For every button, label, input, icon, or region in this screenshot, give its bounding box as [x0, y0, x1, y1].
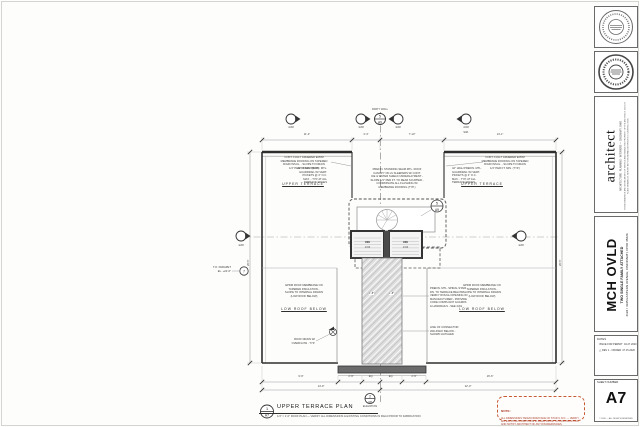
stamp-box-1	[594, 6, 638, 48]
marker-label-2: 3/A8	[358, 126, 363, 129]
date-entry-1-label: ISSUE FOR PERMIT	[599, 343, 623, 346]
engineer-seal-icon	[595, 52, 637, 92]
grid-bubble: 5 A9	[375, 114, 386, 125]
elevation-bubble-top: 2	[369, 394, 371, 398]
sheet-number-box: SHEET NUMBER A7 © 2020 — ALL RIGHTS RESE…	[594, 379, 638, 422]
drawing-scale-line: 1/4" = 1'-0" ROOF PLAN — VERIFY ALL DIME…	[277, 415, 421, 418]
stamp-box-2	[594, 51, 638, 93]
sheet-number: A7	[595, 390, 637, 408]
project-name: MCH OVLD	[605, 238, 618, 311]
marker-label-left: 4/A8	[238, 244, 243, 247]
title-bubble: 1 A7	[261, 405, 274, 418]
dim-bottom1-1: 9'-9"	[298, 375, 303, 378]
date-entry-2-date: 07.15.2020	[622, 349, 635, 352]
note-parapet: T.O. PARAPET EL. +24'-6"	[213, 266, 231, 273]
grid-bubble-bottom: A9	[378, 121, 382, 125]
stair-risers-right: 13 R	[403, 246, 408, 249]
note-heading: NOTE:	[501, 409, 511, 413]
section-marker-1	[286, 114, 301, 124]
project-subtitle: TWO SINGLE FAMILY ATTACHED	[620, 247, 624, 304]
parapet-bubble: 7	[240, 267, 248, 275]
marker-label-4: 2/A8	[463, 126, 468, 129]
stair-enclosure	[357, 207, 435, 232]
elevation-bubble: 2 A8	[365, 394, 375, 405]
stair-dn-right: DN	[403, 240, 407, 244]
dates-box: DATES ISSUE FOR PERMIT 04.27.2020 △ REV …	[594, 335, 638, 376]
note-roof-drain: ROOF DRAIN W/ OVERFLOW - TYP.	[292, 338, 315, 345]
marker-label-sim: SIM.	[463, 131, 468, 134]
title-rule	[259, 413, 378, 414]
section-marker-2	[356, 114, 371, 124]
section-marker-4	[457, 114, 472, 124]
stair-shafts	[351, 231, 422, 258]
firm-disclaimer: THESE DRAWINGS ARE INSTRUMENTS OF SERVIC…	[624, 102, 629, 210]
firm-address: ARCHITECTURE · PLANNING · INTERIORS — CI…	[620, 121, 622, 191]
marker-label-right: 4/A8	[518, 244, 523, 247]
marker-label-3: 3/A8	[395, 126, 400, 129]
terrace-label-right: UPPER TERRACE	[461, 182, 503, 186]
dim-top-4: 14'-1"	[497, 133, 504, 136]
parapet-cap-bar	[338, 366, 426, 373]
date-entry-1: ISSUE FOR PERMIT 04.27.2020	[599, 343, 637, 346]
date-entry-2-label: REV 1 - OWNER	[602, 349, 621, 352]
marker-label-1: 2/A8	[288, 126, 293, 129]
stair-risers-left: 13 R	[365, 246, 370, 249]
note-walkway: LINE OF CONNECTOR WALKWAY BELOW - SHOWN …	[430, 326, 458, 337]
detail-bubble: 5 A9	[431, 200, 443, 212]
grid-bubble-top: 5	[379, 115, 381, 119]
title-bubble-top: 1	[266, 407, 268, 411]
strip-dim-2: 1'-8"	[389, 292, 395, 295]
elevation-ref-label: ELEVATION	[363, 405, 377, 408]
sheet-number-label: SHEET NUMBER	[597, 381, 618, 384]
date-entry-2: △ REV 1 - OWNER 07.15.2020	[599, 348, 635, 352]
revision-delta-icon: △	[599, 348, 601, 352]
dates-label: DATES	[597, 337, 606, 341]
date-entry-1-date: 04.27.2020	[624, 343, 637, 346]
dim-bottom1-6: 16'-6"	[487, 375, 494, 378]
terrace-label-left: UPPER TERRACE	[282, 182, 324, 186]
project-box: MCH OVLD TWO SINGLE FAMILY ATTACHED 4193…	[594, 216, 638, 332]
detail-bubble-bottom: A9	[435, 208, 439, 212]
low-roof-label-left: LOW ROOF BELOW	[281, 307, 327, 311]
dim-top-3: 7'-10"	[409, 133, 416, 136]
strip-dim-1: 1'-8"	[369, 292, 375, 295]
architect-seal-icon	[595, 7, 637, 47]
dim-bottom1-2: 2'-9"	[348, 375, 353, 378]
note-canopy: PREFIN. STANDING SEAM MTL. ROOF CANOPY O…	[370, 168, 423, 189]
note-right-roof: CONT. FULLY ADHERED EPDM MEMBRANE ROOFIN…	[482, 156, 529, 170]
dim-top-2: 3'-4"	[363, 133, 368, 136]
note-low-roof-left: EPDM ROOF MEMBRANE ON TAPERED INSULATION…	[285, 284, 323, 298]
drawing-title: UPPER TERRACE PLAN	[277, 404, 353, 410]
note-body: ALL DIMENSIONS TAKEN FROM FACE OF STUD U…	[501, 417, 581, 426]
firm-name: architect	[604, 129, 618, 182]
plan-linework: 5 A9 5 A9 2 A8 1 A7 7	[0, 0, 640, 427]
title-bubble-bottom: A7	[265, 413, 269, 417]
parapet-bubble-text: 7	[243, 269, 245, 273]
walkway-hatch-strip	[362, 258, 402, 364]
elevation-bubble-bottom: A8	[368, 400, 372, 404]
stair-dn-left: DN	[365, 240, 369, 244]
detail-bubble-top: 5	[436, 202, 438, 206]
section-marker-right	[512, 231, 527, 241]
firm-box: architect ARCHITECTURE · PLANNING · INTE…	[594, 96, 638, 213]
dim-bottom2-2: 22'-0"	[465, 385, 472, 388]
dim-bottom1-4: EQ.	[389, 375, 393, 378]
general-note-box: NOTE: ALL DIMENSIONS TAKEN FROM FACE OF …	[497, 396, 585, 421]
dim-right-side: 26'-5"	[559, 259, 562, 266]
sheet-copyright: © 2020 — ALL RIGHTS RESERVED	[595, 418, 637, 420]
low-roof-label-right: LOW ROOF BELOW	[459, 307, 505, 311]
dim-top-1: 11'-4"	[304, 133, 310, 136]
section-marker-left	[236, 231, 251, 241]
dim-left-side: 26'-5"	[247, 259, 250, 266]
section-marker-3	[389, 114, 404, 124]
project-address: 4193 / 4195 EASTERN AVENUE, CINCINNATI, …	[625, 233, 629, 316]
drawing-sheet: 5 A9 5 A9 2 A8 1 A7 7	[0, 0, 640, 427]
note-low-roof-right: EPDM ROOF MEMBRANE ON TAPERED INSULATION…	[463, 284, 501, 298]
dim-bottom1-3: EQ.	[369, 375, 373, 378]
dim-bottom1-5: 2'-9"	[411, 375, 416, 378]
dim-bottom2-1: 14'-9"	[318, 385, 325, 388]
party-wall-label: PARTY WALL	[372, 108, 388, 111]
